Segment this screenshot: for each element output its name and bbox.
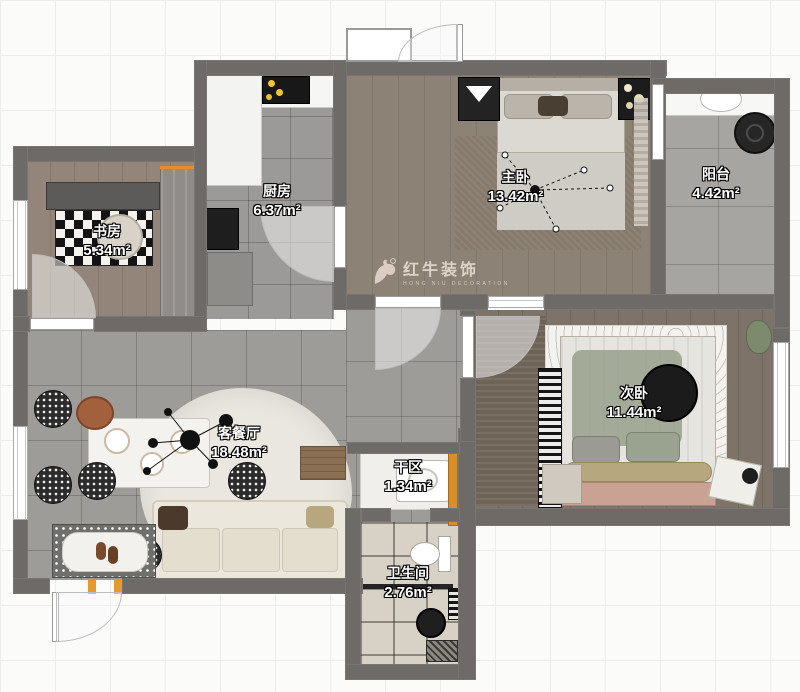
wall: [458, 428, 476, 680]
sofa-pillow: [158, 506, 188, 530]
wall: [774, 78, 790, 328]
cooktop-burner-dot: [268, 80, 275, 87]
window: [773, 342, 789, 468]
master-blanket: [497, 152, 625, 230]
cooktop-burner-dot: [266, 94, 272, 100]
wall: [13, 316, 30, 332]
sofa-cushion: [222, 528, 280, 572]
wall: [430, 508, 460, 522]
shower-screen: [363, 584, 453, 589]
hanging-chair: [640, 364, 698, 422]
door-leaf-study: [30, 318, 94, 330]
sofa-cushion: [282, 528, 338, 572]
wall: [13, 146, 207, 162]
balcony-door: [652, 84, 664, 160]
master-curtain: [634, 98, 648, 226]
study-chair: [97, 214, 143, 260]
master-bed-headboard: [497, 78, 625, 91]
plate: [104, 428, 130, 454]
wall: [460, 508, 790, 526]
wall: [122, 578, 363, 594]
planter-pot: [76, 396, 114, 430]
dry-basin: [408, 468, 438, 492]
wall: [441, 294, 488, 310]
wall: [333, 60, 347, 208]
nightstand-lamp: [742, 468, 758, 484]
ceiling-light-icon: [466, 86, 492, 102]
window: [488, 296, 544, 308]
floor-drain: [416, 608, 446, 638]
wall: [94, 316, 207, 332]
flower-dot: [626, 102, 633, 109]
window: [13, 426, 28, 520]
wall: [333, 268, 347, 310]
second-bed-bolster: [564, 462, 712, 482]
entry-door-swing: [56, 592, 122, 642]
second-bed-foot: [560, 482, 716, 506]
second-nightstand-left: [542, 464, 582, 504]
plant: [746, 320, 772, 354]
master-throw-pillow: [538, 96, 568, 116]
dining-chair: [34, 390, 72, 428]
wall: [361, 508, 391, 522]
dining-chair: [34, 466, 72, 504]
wall: [205, 60, 667, 76]
wall: [544, 294, 774, 310]
wall: [460, 378, 476, 442]
door-leaf-master: [375, 296, 441, 308]
plate: [140, 452, 164, 476]
wall: [345, 508, 361, 680]
door-leaf-second-bedroom: [462, 316, 474, 378]
sofa-pillow: [306, 506, 334, 528]
floor-plan: 书房 5.34m² 厨房 6.37m² 主卧 13.42m² 阳台 4.42m²…: [0, 0, 800, 692]
tv-bench: [300, 446, 346, 480]
second-bed-pillow: [626, 432, 680, 462]
flower-dot: [624, 84, 632, 92]
study-desk: [46, 182, 160, 210]
study-wardrobe: [160, 166, 198, 318]
wall: [652, 78, 790, 94]
second-bed-pillow: [572, 436, 620, 464]
shoes: [108, 546, 118, 564]
wall: [347, 442, 460, 454]
dining-chair: [78, 462, 116, 500]
window: [13, 200, 28, 290]
door-leaf-kitchen: [334, 206, 346, 268]
wall: [13, 578, 50, 594]
plate: [170, 430, 194, 454]
sofa-cushion: [162, 528, 220, 572]
wall: [194, 60, 207, 332]
toilet-bowl: [410, 542, 440, 566]
kitchen-fridge: [205, 208, 239, 250]
wall: [345, 664, 476, 680]
kitchen-cabinet: [207, 252, 253, 306]
shower-hatch: [426, 640, 458, 662]
shoes: [96, 542, 106, 560]
study-wardrobe-accent: [160, 166, 198, 169]
cooktop-burner-dot: [276, 89, 283, 96]
washing-machine-door: [746, 124, 764, 142]
kitchen-counter-left: [206, 74, 262, 186]
dining-chair: [228, 462, 266, 500]
